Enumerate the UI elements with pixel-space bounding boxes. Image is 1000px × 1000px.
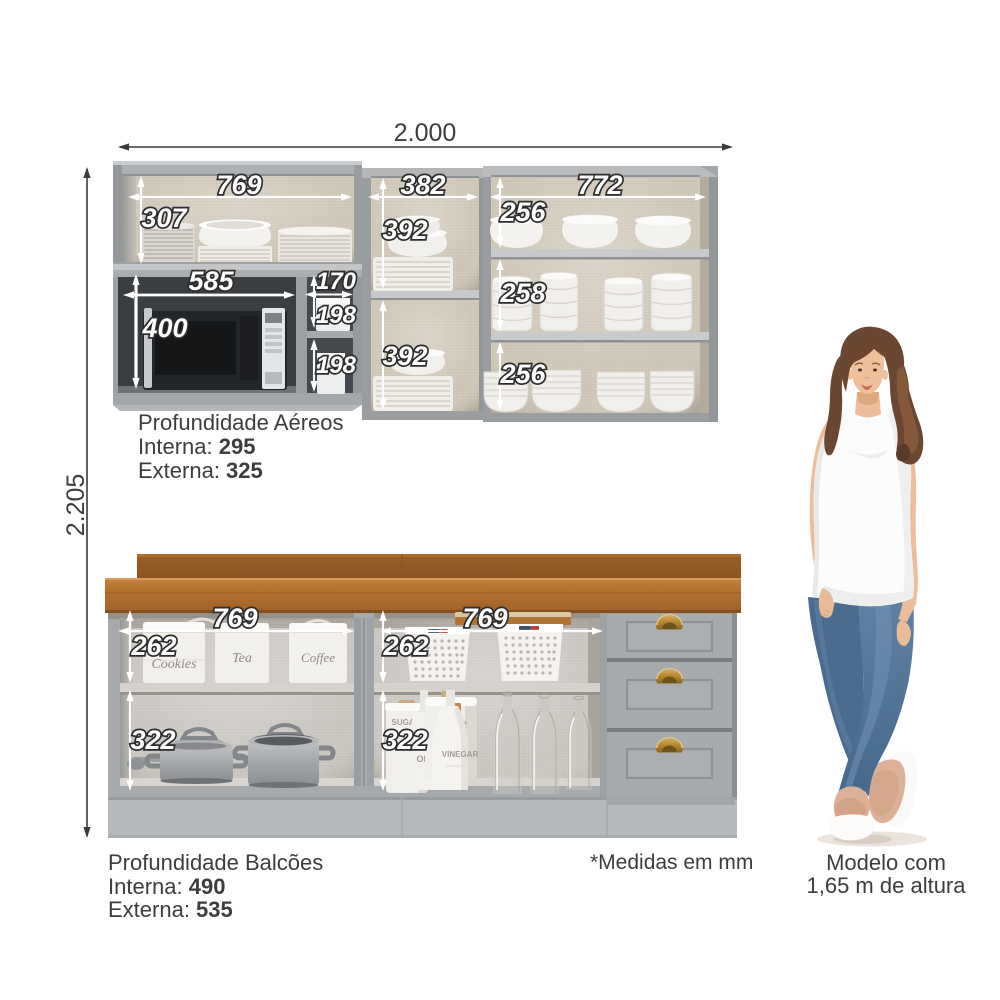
svg-text:382: 382 [400, 170, 445, 200]
svg-text:262: 262 [382, 631, 428, 661]
svg-text:Profundidade Balcões: Profundidade Balcões [108, 850, 323, 875]
svg-text:585: 585 [188, 266, 234, 296]
svg-text:VINEGAR: VINEGAR [442, 750, 479, 759]
svg-text:170: 170 [316, 268, 357, 295]
svg-text:Interna: 490: Interna: 490 [108, 874, 225, 899]
svg-text:769: 769 [462, 603, 507, 633]
svg-text:*Medidas em mm: *Medidas em mm [590, 851, 753, 874]
svg-text:258: 258 [499, 278, 545, 308]
svg-text:256: 256 [499, 359, 546, 389]
svg-text:2.205: 2.205 [62, 474, 90, 537]
svg-text:322: 322 [382, 725, 427, 755]
svg-text:Externa: 325: Externa: 325 [138, 458, 263, 483]
svg-text:2.000: 2.000 [394, 119, 457, 147]
svg-text:400: 400 [141, 313, 187, 343]
svg-text:1,65 m de altura: 1,65 m de altura [807, 873, 967, 898]
svg-text:Externa: 535: Externa: 535 [108, 897, 233, 922]
svg-text:Tea: Tea [232, 651, 252, 666]
svg-text:Profundidade Aéreos: Profundidade Aéreos [138, 410, 344, 435]
svg-text:262: 262 [130, 631, 176, 661]
svg-text:769: 769 [212, 603, 257, 633]
svg-text:Modelo com: Modelo com [826, 850, 946, 875]
svg-text:307: 307 [141, 203, 188, 233]
svg-text:256: 256 [499, 197, 546, 227]
svg-text:392: 392 [382, 215, 427, 245]
svg-text:322: 322 [130, 725, 175, 755]
svg-text:198: 198 [316, 302, 357, 329]
svg-text:772: 772 [577, 170, 622, 200]
svg-text:392: 392 [382, 341, 427, 371]
svg-text:Coffee: Coffee [301, 650, 335, 665]
svg-text:769: 769 [216, 170, 261, 200]
svg-text:198: 198 [316, 352, 357, 379]
svg-text:Interna: 295: Interna: 295 [138, 434, 255, 459]
